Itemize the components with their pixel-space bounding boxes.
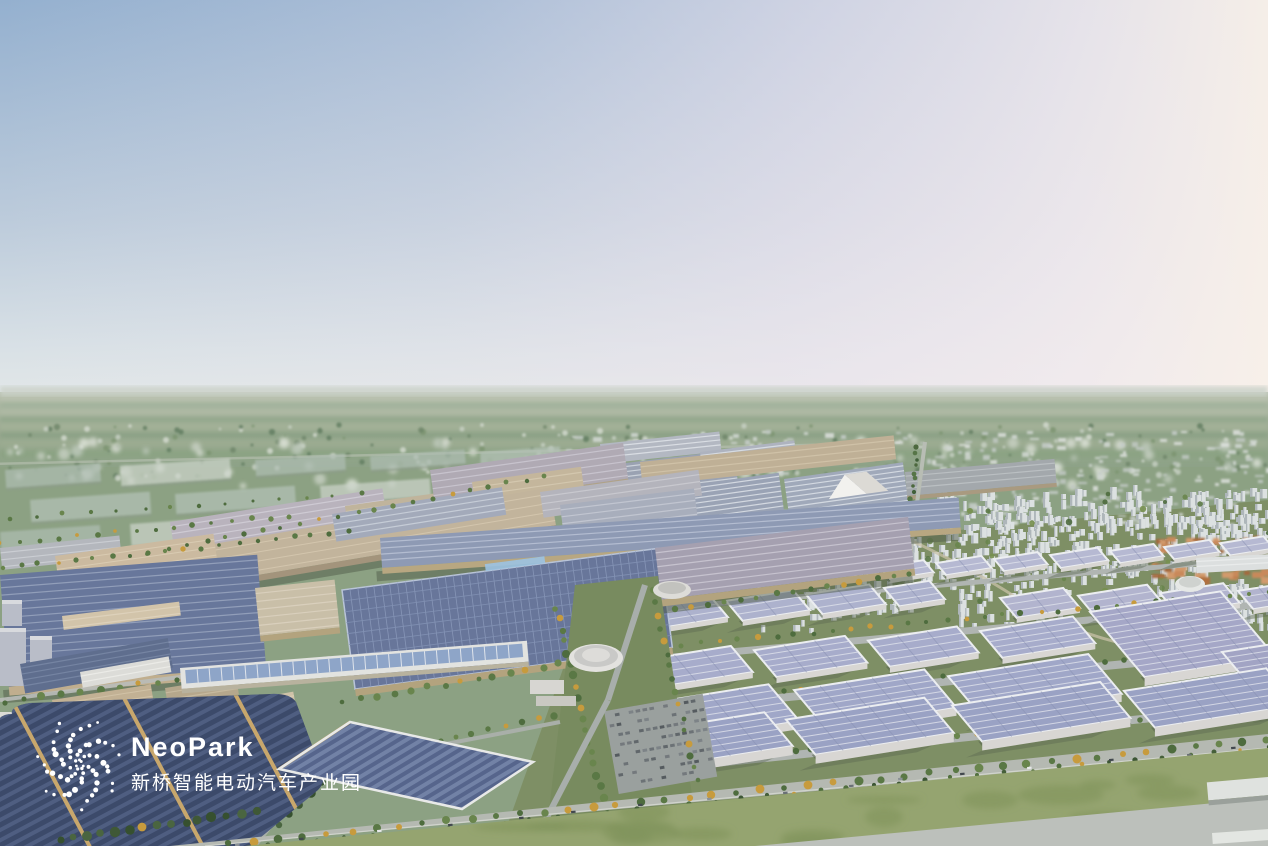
svg-text:NeoPark: NeoPark (131, 732, 255, 762)
svg-text:新桥智能电动汽车产业园: 新桥智能电动汽车产业园 (131, 772, 362, 794)
